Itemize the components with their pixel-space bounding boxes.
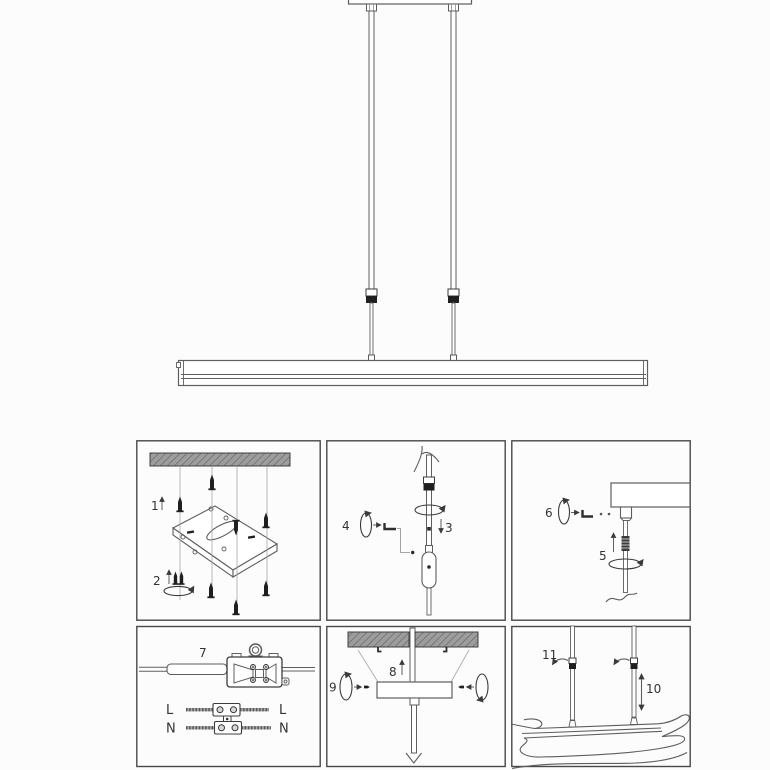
wire-label-neutral-left: N (166, 722, 176, 737)
step-label-6: 6 (545, 506, 553, 520)
rod-break-mark (606, 593, 637, 602)
allen-key-icon (385, 523, 397, 529)
step-label-5: 5 (599, 549, 607, 563)
set-screw-dot (411, 551, 414, 554)
suspension-cable-left (569, 626, 576, 727)
rod-socket (449, 4, 459, 11)
side-screw (458, 686, 464, 689)
light-bar-cutaway (511, 715, 689, 769)
panel-cable-adjustment: 3 4 (326, 440, 506, 621)
step-11-annotation: 11 (542, 648, 630, 665)
step-8-annotation: 8 (389, 660, 402, 679)
step-label-10: 10 (646, 682, 661, 696)
wiring-diagram: L L N N (166, 703, 289, 737)
step-label-8: 8 (389, 665, 397, 679)
linear-light-bar (177, 361, 648, 386)
ceiling-hook (378, 647, 382, 652)
leader-dot (600, 513, 603, 516)
wire-label-neutral-right: N (279, 722, 289, 737)
suspension-rod-right (448, 11, 459, 361)
leader-line (397, 529, 410, 553)
central-rod (410, 628, 415, 682)
step-6-annotation: 6 (545, 496, 610, 524)
rod-break-mark (406, 753, 422, 763)
step-label-2: 2 (153, 574, 161, 588)
ceiling-canopy (349, 0, 472, 11)
panel-bracket-mounting: 1 2 (136, 440, 321, 621)
panel-rod-fixing: 6 5 (511, 440, 691, 621)
step-1-annotation: 1 (151, 497, 162, 513)
step-4-annotation: 4 (342, 509, 414, 554)
step-label-4: 4 (342, 519, 350, 533)
rotate-symbol (164, 586, 192, 595)
mounting-bracket-plate (173, 506, 277, 577)
canopy-section (611, 483, 690, 521)
strain-relief-connector (139, 644, 315, 687)
side-screw (364, 686, 370, 689)
wire-label-live-left: L (166, 703, 174, 718)
step-label-9: 9 (329, 681, 337, 695)
panel-height-adjustment: 11 10 (511, 623, 691, 770)
step-label-7: 7 (199, 646, 207, 660)
panel-canopy-mounting: 8 9 (326, 623, 506, 770)
allen-key-icon (583, 510, 594, 517)
suspension-rod-left (366, 11, 377, 361)
cable-adjuster-body (422, 546, 436, 616)
ceiling-hook (443, 647, 447, 652)
canopy-body (377, 682, 452, 763)
step-label-11: 11 (542, 648, 557, 662)
step-10-annotation: 10 (642, 674, 662, 710)
step-label-3: 3 (445, 521, 453, 535)
step-label-1: 1 (151, 499, 159, 513)
leader-dot (608, 513, 611, 516)
wire-label-live-right: L (279, 703, 287, 718)
step-3-annotation: 3 (441, 519, 453, 535)
ceiling-surface (150, 453, 290, 466)
suspension-cable-right (631, 626, 638, 725)
panel-wiring: 7 L (136, 623, 321, 770)
assembled-lamp-overview (0, 0, 770, 440)
rod-socket (367, 4, 377, 11)
hanging-ring (250, 644, 262, 656)
suspension-rod (424, 455, 435, 546)
